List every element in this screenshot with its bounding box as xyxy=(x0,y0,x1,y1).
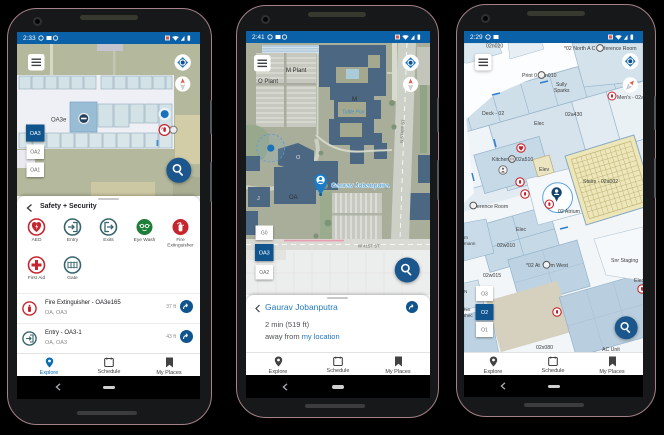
svg-text:Gate: Gate xyxy=(67,275,78,281)
svg-text:J: J xyxy=(257,196,260,202)
svg-text:O1: O1 xyxy=(481,328,488,334)
svg-text:Elec: Elec xyxy=(516,227,526,233)
svg-text:AED: AED xyxy=(32,237,42,243)
svg-text:02n020: 02n020 xyxy=(486,44,503,50)
svg-text:O3: O3 xyxy=(481,292,488,298)
svg-text:O2: O2 xyxy=(481,310,488,316)
svg-text:OA3e: OA3e xyxy=(51,118,67,124)
svg-text:O: O xyxy=(296,155,301,161)
svg-text:Stairs - 02a002: Stairs - 02a002 xyxy=(583,179,618,185)
svg-text:N: N xyxy=(464,289,467,294)
svg-text:mann: mann xyxy=(464,241,476,246)
svg-text:Kitchen: Kitchen xyxy=(492,157,509,163)
svg-text:n010: n010 xyxy=(545,73,557,79)
svg-text:OA: OA xyxy=(289,195,298,201)
svg-text:Extinguisher: Extinguisher xyxy=(167,242,194,248)
svg-text:Elec: Elec xyxy=(634,278,643,284)
svg-text:Elev: Elev xyxy=(539,167,549,173)
svg-text:Elec: Elec xyxy=(534,121,544,127)
svg-text:02x080: 02x080 xyxy=(536,345,553,351)
svg-text:O Plant: O Plant xyxy=(258,79,278,85)
svg-text:Print 0: Print 0 xyxy=(522,73,537,79)
svg-text:G0: G0 xyxy=(261,231,268,237)
svg-text:Exits: Exits xyxy=(103,237,114,243)
svg-text:Gaurav Jobanputra: Gaurav Jobanputra xyxy=(331,183,389,190)
svg-text:02a430: 02a430 xyxy=(565,112,582,118)
svg-text:OA2: OA2 xyxy=(30,150,40,156)
svg-text:02a510: 02a510 xyxy=(516,157,533,163)
svg-text:thec: thec xyxy=(464,313,473,318)
svg-text:hin: hin xyxy=(464,307,471,312)
svg-text:OA3: OA3 xyxy=(30,131,41,137)
svg-text:02 Atrium: 02 Atrium xyxy=(558,209,580,215)
svg-text:*02 At: *02 At xyxy=(526,263,540,269)
svg-text:02w015: 02w015 xyxy=(483,273,501,279)
svg-text:Men's - 02a33: Men's - 02a33 xyxy=(617,95,643,101)
svg-text:First Aid: First Aid xyxy=(28,275,46,281)
svg-text:Deck - 02: Deck - 02 xyxy=(482,111,504,117)
svg-text:erence Room: erence Room xyxy=(477,204,508,210)
svg-text:m West: m West xyxy=(551,263,569,269)
svg-text:M Plant: M Plant xyxy=(286,68,307,74)
svg-text:Eye Wash: Eye Wash xyxy=(134,237,156,243)
svg-text:Fire: Fire xyxy=(176,237,185,243)
svg-text:M: M xyxy=(352,97,357,103)
svg-text:*02 North A C: *02 North A C xyxy=(564,46,596,52)
svg-text:Entry: Entry xyxy=(67,237,79,243)
svg-text:02w010: 02w010 xyxy=(497,243,515,249)
svg-text:rn: rn xyxy=(464,235,469,240)
svg-text:W 41ST ST: W 41ST ST xyxy=(358,244,380,249)
svg-text:Sparks: Sparks xyxy=(554,88,570,94)
svg-text:OA2: OA2 xyxy=(259,270,269,276)
svg-text:Snr Staging: Snr Staging xyxy=(611,258,638,264)
svg-text:OA1: OA1 xyxy=(30,168,40,174)
svg-text:OA3: OA3 xyxy=(259,251,270,257)
svg-text:Tuttle Pon: Tuttle Pon xyxy=(342,110,365,116)
svg-text:ference Room: ference Room xyxy=(604,46,637,52)
